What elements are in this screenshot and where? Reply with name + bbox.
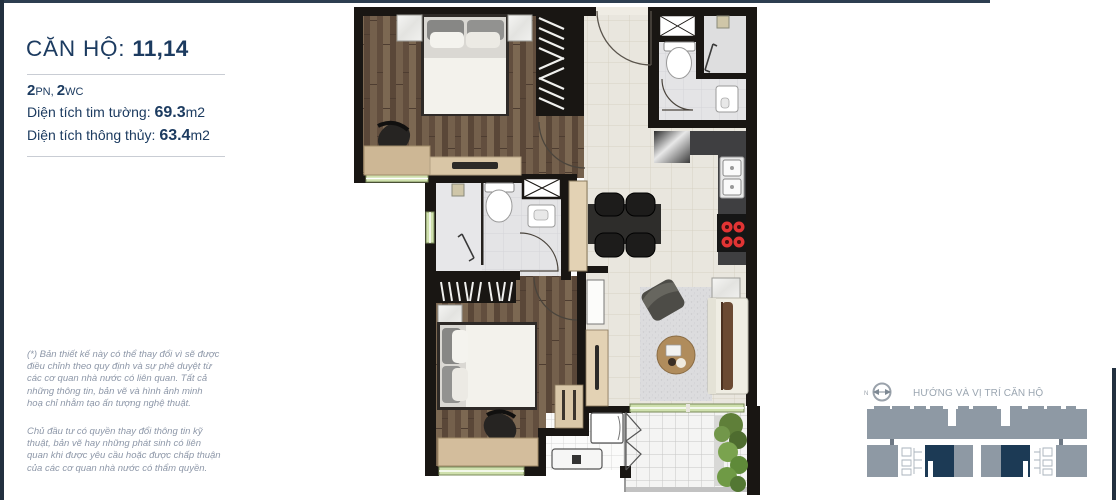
svg-text:N: N bbox=[864, 391, 868, 397]
svg-text:HƯỚNG VÀ VỊ TRÍ CĂN HỘ: HƯỚNG VÀ VỊ TRÍ CĂN HỘ bbox=[913, 386, 1043, 399]
